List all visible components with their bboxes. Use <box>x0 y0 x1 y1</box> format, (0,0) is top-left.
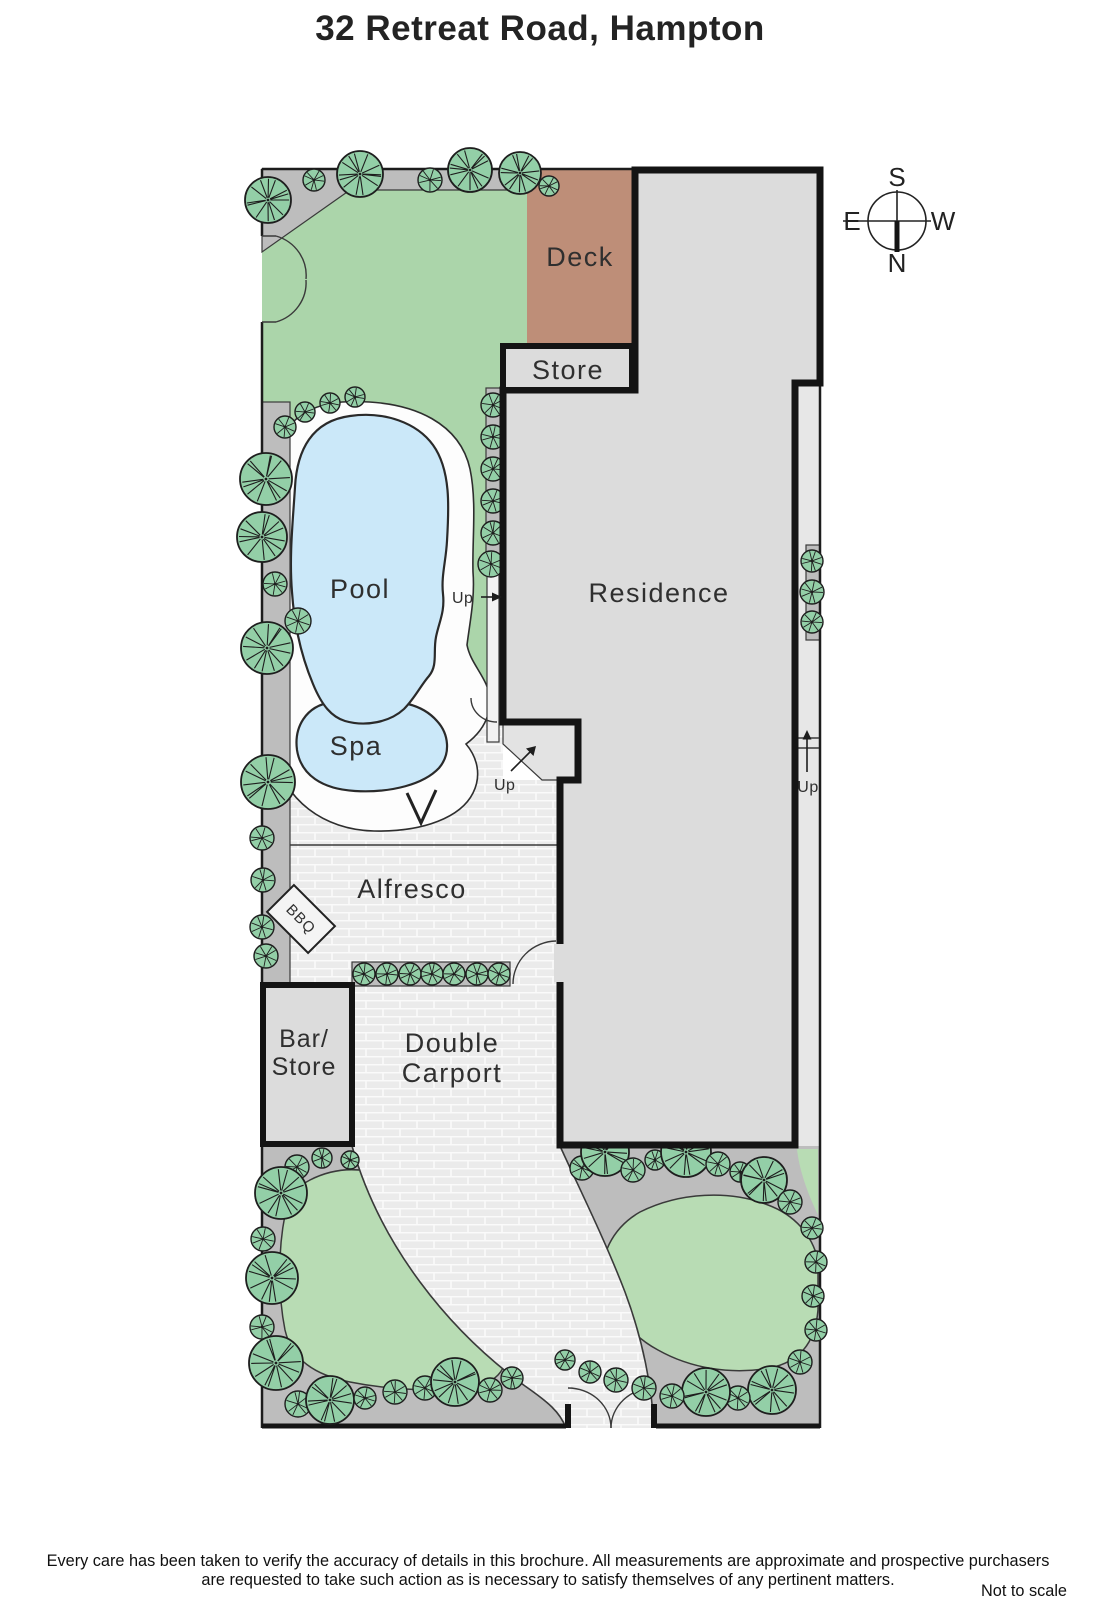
bar-store-label-line1: Bar/ <box>279 1025 329 1053</box>
tree-icon <box>431 1358 479 1406</box>
compass-rose: S N E W <box>843 162 956 278</box>
tree-icon <box>383 1380 407 1404</box>
tree-icon <box>805 1251 827 1273</box>
tree-icon <box>241 755 295 809</box>
tree-icon <box>748 1366 796 1414</box>
tree-icon <box>488 963 510 985</box>
tree-icon <box>418 168 442 192</box>
tree-icon <box>501 1367 523 1389</box>
tree-icon <box>251 1227 275 1251</box>
tree-icon <box>312 1148 332 1168</box>
tree-icon <box>240 453 292 505</box>
tree-icon <box>295 402 315 422</box>
up-side-label: Up <box>797 779 818 796</box>
tree-icon <box>706 1152 730 1176</box>
tree-icon <box>660 1384 684 1408</box>
tree-icon <box>448 148 492 192</box>
tree-icon <box>337 151 383 197</box>
store-label: Store <box>532 355 604 385</box>
compass-west-label: W <box>931 206 956 236</box>
up-landing-label: Up <box>494 777 515 794</box>
tree-icon <box>682 1368 730 1416</box>
tree-icon <box>604 1368 628 1392</box>
tree-icon <box>249 1336 303 1390</box>
alfresco-label: Alfresco <box>357 874 467 904</box>
stair-landing <box>503 722 578 780</box>
up-pool-label: Up <box>452 590 473 607</box>
tree-icon <box>341 1151 359 1169</box>
tree-icon <box>632 1376 656 1400</box>
pool-label: Pool <box>330 574 390 604</box>
tree-icon <box>237 512 287 562</box>
carport-label-line2: Carport <box>402 1058 503 1088</box>
page-title: 32 Retreat Road, Hampton <box>315 9 765 48</box>
tree-icon <box>306 1376 354 1424</box>
tree-icon <box>778 1190 802 1214</box>
tree-icon <box>539 176 559 196</box>
tree-icon <box>801 550 823 572</box>
pool-shape <box>291 415 448 724</box>
garden-steps <box>487 565 499 742</box>
tree-icon <box>499 152 541 194</box>
residence-label: Residence <box>588 578 729 608</box>
compass-south-label: S <box>888 162 905 192</box>
tree-icon <box>579 1361 601 1383</box>
site-plan-svg: BBQ S N E W Deck Store Pool Spa Residenc… <box>0 0 1096 1600</box>
tree-icon <box>245 177 291 223</box>
footer-line1: Every care has been taken to verify the … <box>47 1552 1050 1570</box>
tree-icon <box>303 169 325 191</box>
tree-icon <box>376 963 398 985</box>
tree-icon <box>801 611 823 633</box>
compass-east-label: E <box>843 206 860 236</box>
tree-icon <box>250 915 274 939</box>
tree-icon <box>255 1167 307 1219</box>
tree-icon <box>399 963 421 985</box>
not-to-scale-note: Not to scale <box>981 1582 1067 1600</box>
bar-store-label-line2: Store <box>272 1053 337 1081</box>
tree-icon <box>354 1387 376 1409</box>
tree-icon <box>443 963 465 985</box>
tree-icon <box>263 572 287 596</box>
tree-icon <box>251 868 275 892</box>
tree-icon <box>421 963 443 985</box>
tree-icon <box>254 944 278 968</box>
tree-icon <box>345 387 365 407</box>
tree-icon <box>250 826 274 850</box>
tree-icon <box>241 622 293 674</box>
spa-label: Spa <box>330 731 383 761</box>
deck-label: Deck <box>546 242 614 272</box>
tree-icon <box>805 1319 827 1341</box>
tree-icon <box>621 1158 645 1182</box>
tree-icon <box>466 963 488 985</box>
tree-icon <box>250 1315 274 1339</box>
tree-icon <box>555 1350 575 1370</box>
tree-icon <box>285 608 311 634</box>
tree-icon <box>353 963 375 985</box>
tree-icon <box>274 416 296 438</box>
tree-icon <box>800 580 824 604</box>
footer-disclaimer: Every care has been taken to verify the … <box>47 1552 1067 1600</box>
tree-icon <box>246 1252 298 1304</box>
tree-icon <box>788 1350 812 1374</box>
tree-icon <box>478 1378 502 1402</box>
compass-north-label: N <box>888 248 907 278</box>
footer-line2: are requested to take such action as is … <box>201 1571 894 1589</box>
carport-label-line1: Double <box>405 1028 500 1058</box>
tree-icon <box>802 1285 824 1307</box>
tree-icon <box>320 393 340 413</box>
tree-icon <box>801 1217 823 1239</box>
